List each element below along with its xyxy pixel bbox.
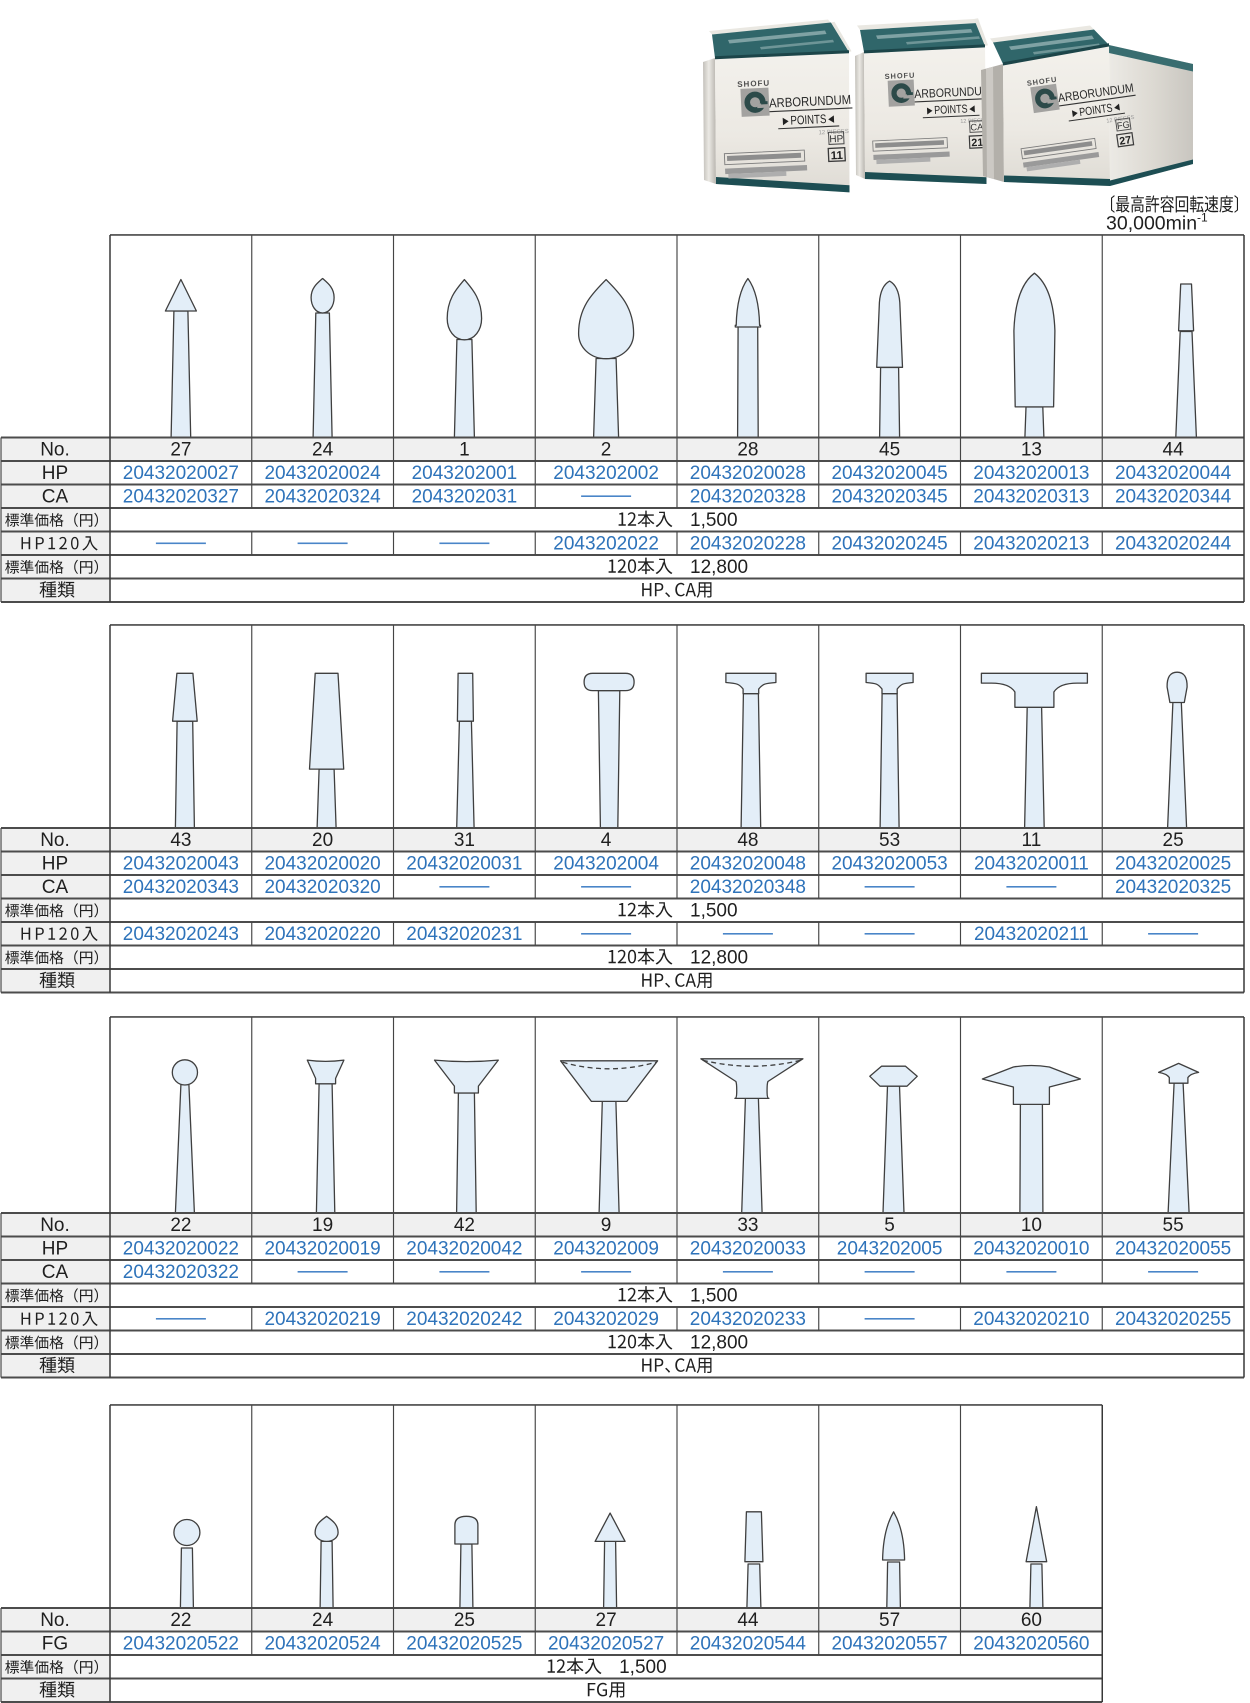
svg-text:HP: HP [42,463,68,484]
svg-text:20432020010: 20432020010 [973,1239,1089,1260]
svg-text:20432020027: 20432020027 [123,463,239,484]
svg-text:SHOFU: SHOFU [884,71,915,81]
svg-text:No.: No. [40,1215,70,1236]
svg-text:27: 27 [170,440,191,461]
svg-text:1,500: 1,500 [690,901,738,922]
svg-text:No.: No. [40,1610,70,1631]
svg-text:30,000min: 30,000min [1106,213,1197,235]
svg-text:12,800: 12,800 [690,1333,748,1354]
svg-text:20432020231: 20432020231 [406,924,522,945]
svg-text:20432020045: 20432020045 [831,463,947,484]
svg-text:2043202031: 2043202031 [412,487,518,508]
svg-text:27: 27 [1119,134,1132,148]
svg-text:20432020557: 20432020557 [831,1634,947,1655]
svg-text:20432020042: 20432020042 [406,1239,522,1260]
svg-text:20432020043: 20432020043 [123,854,239,875]
svg-text:20432020322: 20432020322 [123,1262,239,1283]
svg-text:HP: HP [42,854,68,875]
svg-text:20432020325: 20432020325 [1115,877,1231,898]
svg-text:20432020055: 20432020055 [1115,1239,1231,1260]
svg-text:20432020344: 20432020344 [1115,487,1232,508]
svg-text:2043202002: 2043202002 [553,463,659,484]
svg-text:20432020313: 20432020313 [973,487,1089,508]
svg-text:2: 2 [601,440,612,461]
svg-text:20432020327: 20432020327 [123,487,239,508]
svg-text:2043202001: 2043202001 [412,463,518,484]
svg-text:20432020213: 20432020213 [973,534,1089,555]
svg-text:1,500: 1,500 [619,1657,667,1678]
svg-text:20432020033: 20432020033 [690,1239,806,1260]
svg-text:20432020211: 20432020211 [974,924,1089,945]
svg-text:20432020328: 20432020328 [690,487,806,508]
svg-text:20432020053: 20432020053 [831,854,947,875]
svg-text:9: 9 [601,1215,612,1236]
svg-text:-1: -1 [1197,211,1208,225]
svg-text:19: 19 [312,1215,333,1236]
svg-text:20432020022: 20432020022 [123,1239,239,1260]
svg-text:20432020048: 20432020048 [690,854,806,875]
svg-text:11: 11 [1022,830,1042,851]
svg-text:2043202004: 2043202004 [553,854,659,875]
svg-text:20: 20 [312,830,333,851]
svg-text:20432020525: 20432020525 [406,1634,522,1655]
svg-text:HP: HP [829,134,844,146]
svg-text:20432020524: 20432020524 [264,1634,381,1655]
svg-text:SHOFU: SHOFU [737,79,770,89]
svg-text:20432020019: 20432020019 [264,1239,380,1260]
svg-text:25: 25 [454,1610,475,1631]
svg-text:CA: CA [42,877,69,898]
svg-text:2043202029: 2043202029 [553,1309,659,1330]
svg-text:20432020044: 20432020044 [1115,463,1232,484]
svg-text:20432020228: 20432020228 [690,534,806,555]
svg-text:20432020243: 20432020243 [123,924,239,945]
svg-text:1: 1 [459,440,470,461]
svg-text:►POINTS◄: ►POINTS◄ [925,102,977,117]
svg-text:44: 44 [737,1610,759,1631]
svg-text:FG: FG [42,1634,68,1655]
svg-text:42: 42 [454,1215,475,1236]
svg-text:43: 43 [170,830,191,851]
svg-text:48: 48 [737,830,758,851]
svg-text:2043202005: 2043202005 [837,1239,943,1260]
svg-text:2043202009: 2043202009 [553,1239,659,1260]
svg-text:45: 45 [879,440,900,461]
svg-text:CA: CA [42,1262,69,1283]
svg-text:20432020025: 20432020025 [1115,854,1231,875]
svg-text:24: 24 [312,1610,334,1631]
svg-text:20432020020: 20432020020 [264,854,380,875]
svg-text:20432020343: 20432020343 [123,877,239,898]
svg-text:No.: No. [40,830,70,851]
svg-text:20432020233: 20432020233 [690,1309,806,1330]
svg-text:20432020522: 20432020522 [123,1634,239,1655]
svg-text:27: 27 [596,1610,617,1631]
svg-text:22: 22 [170,1610,191,1631]
svg-text:20432020244: 20432020244 [1115,534,1232,555]
svg-text:20432020242: 20432020242 [406,1309,522,1330]
svg-text:33: 33 [737,1215,758,1236]
svg-text:No.: No. [40,440,70,461]
svg-text:20432020544: 20432020544 [690,1634,807,1655]
svg-text:25: 25 [1163,830,1184,851]
svg-text:31: 31 [454,830,475,851]
svg-text:20432020013: 20432020013 [973,463,1089,484]
svg-text:11: 11 [831,150,844,163]
svg-text:22: 22 [170,1215,191,1236]
svg-text:20432020245: 20432020245 [831,534,947,555]
svg-text:20432020527: 20432020527 [548,1634,664,1655]
svg-text:13: 13 [1021,440,1042,461]
svg-text:57: 57 [879,1610,900,1631]
svg-text:21: 21 [971,137,983,150]
svg-text:20432020024: 20432020024 [264,463,381,484]
svg-text:CA: CA [42,487,69,508]
svg-text:44: 44 [1163,440,1185,461]
svg-text:20432020348: 20432020348 [690,877,806,898]
svg-text:20432020031: 20432020031 [406,854,522,875]
svg-text:2043202022: 2043202022 [553,534,659,555]
svg-text:20432020210: 20432020210 [973,1309,1089,1330]
svg-text:20432020028: 20432020028 [690,463,806,484]
svg-text:20432020324: 20432020324 [264,487,381,508]
svg-text:FG: FG [1116,119,1130,131]
svg-text:1,500: 1,500 [690,1286,738,1307]
svg-text:10: 10 [1021,1215,1042,1236]
svg-text:►POINTS◄: ►POINTS◄ [781,112,837,128]
svg-text:24: 24 [312,440,334,461]
svg-text:4: 4 [601,830,612,851]
svg-text:60: 60 [1021,1610,1042,1631]
svg-text:20432020560: 20432020560 [973,1634,1089,1655]
svg-text:55: 55 [1163,1215,1184,1236]
svg-text:HP: HP [42,1239,68,1260]
svg-text:12,800: 12,800 [690,557,748,578]
svg-text:20432020219: 20432020219 [264,1309,380,1330]
svg-text:20432020345: 20432020345 [831,487,947,508]
svg-text:12,800: 12,800 [690,948,748,969]
svg-text:53: 53 [879,830,900,851]
svg-text:28: 28 [737,440,758,461]
svg-text:20432020320: 20432020320 [264,877,380,898]
svg-text:20432020220: 20432020220 [264,924,380,945]
svg-text:5: 5 [884,1215,895,1236]
svg-text:1,500: 1,500 [690,510,738,531]
svg-text:20432020255: 20432020255 [1115,1309,1231,1330]
svg-text:20432020011: 20432020011 [974,854,1089,875]
